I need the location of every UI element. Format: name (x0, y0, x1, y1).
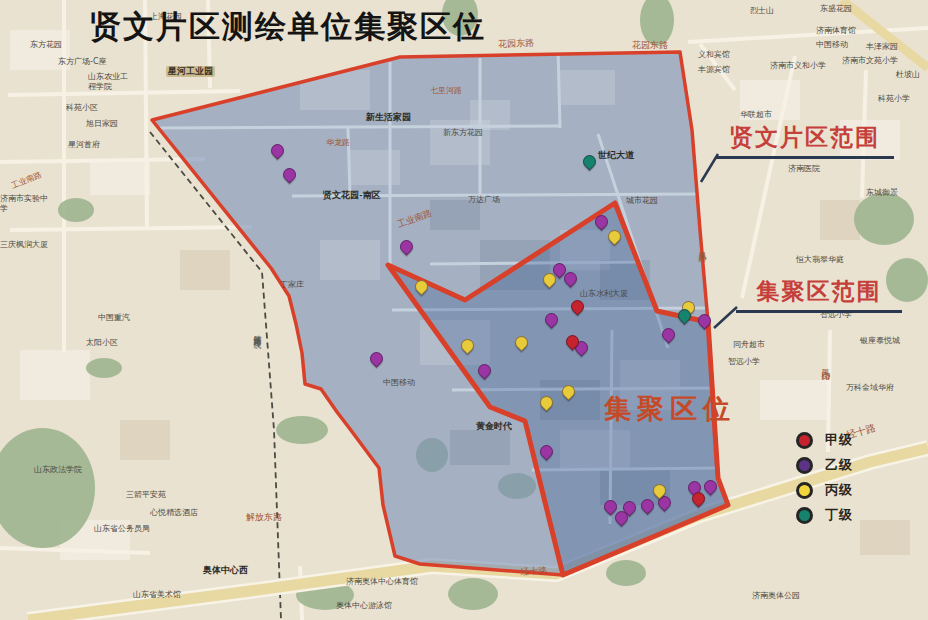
callout-region-range: 贤文片区范围 (716, 122, 894, 159)
legend-item-丙级: 丙级 (796, 481, 853, 499)
legend-item-甲级: 甲级 (796, 431, 853, 449)
map-canvas: 上海花园东方花园东方广场-C座山东农业工程学院科苑小区旭日家园星河首府星河工业园… (0, 0, 928, 620)
park-area (448, 578, 498, 610)
cluster-area-label: 集聚区位 (604, 391, 736, 427)
park-area (854, 193, 914, 245)
park-area (86, 358, 122, 378)
legend-grade-label: 甲级 (825, 431, 853, 449)
legend-grade-dot-icon (796, 482, 813, 499)
park-area (58, 198, 94, 222)
legend-grade-label: 丙级 (825, 481, 853, 499)
legend-grade-dot-icon (796, 432, 813, 449)
legend-grade-label: 乙级 (825, 456, 853, 474)
legend-grade-dot-icon (796, 457, 813, 474)
legend-grade-label: 丁级 (825, 506, 853, 524)
legend-item-丁级: 丁级 (796, 506, 853, 524)
park-area (276, 416, 328, 444)
page-title: 贤文片区测绘单位集聚区位 (90, 6, 486, 48)
legend-grade-dot-icon (796, 507, 813, 524)
legend-item-乙级: 乙级 (796, 456, 853, 474)
callout-cluster-range: 集聚区范围 (736, 276, 902, 313)
park-area (606, 560, 646, 586)
legend: 甲级乙级丙级丁级 (796, 431, 853, 531)
